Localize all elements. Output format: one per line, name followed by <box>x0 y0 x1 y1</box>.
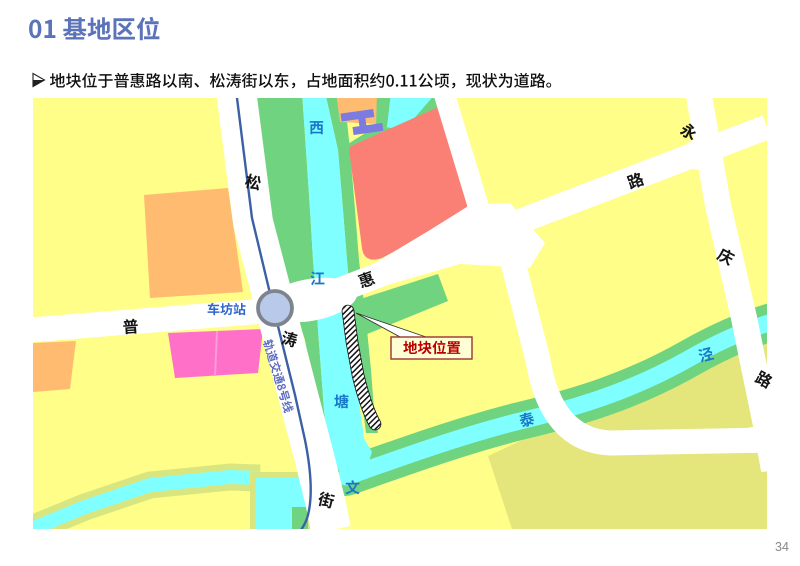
svg-text:34: 34 <box>775 540 789 554</box>
